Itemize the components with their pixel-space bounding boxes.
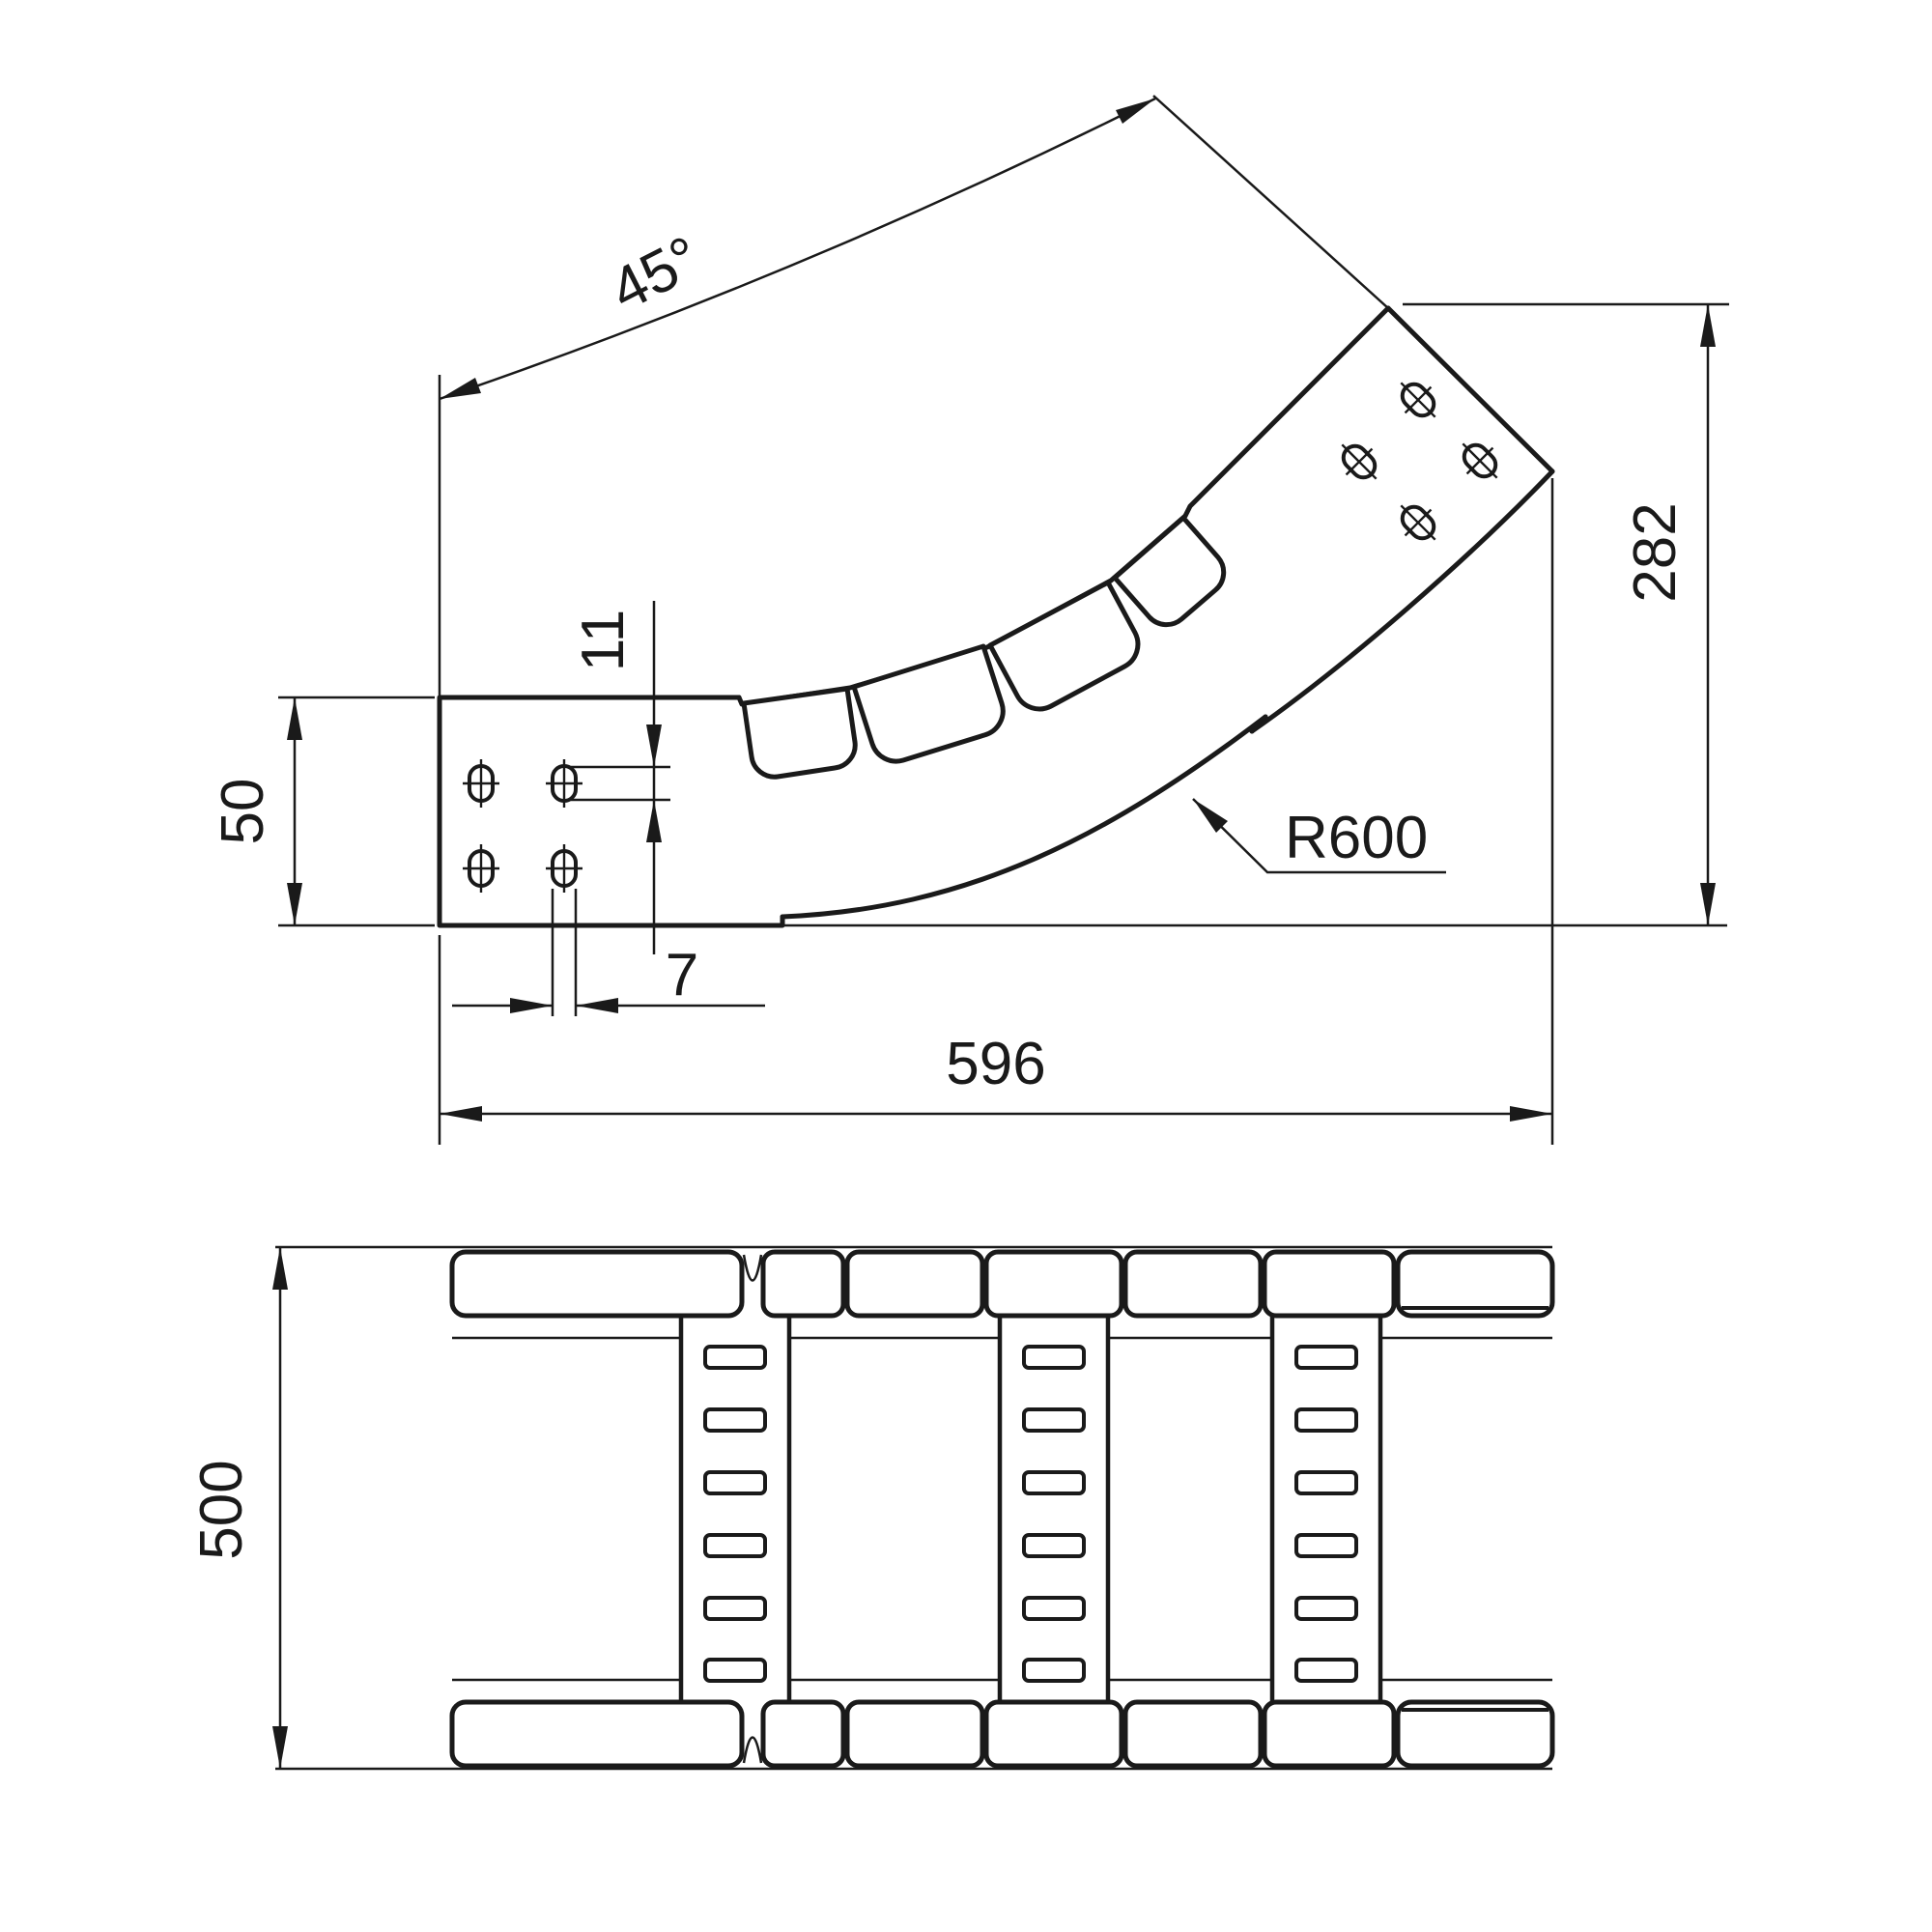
rail-segment xyxy=(1125,1702,1261,1766)
angle-arc xyxy=(440,99,1155,399)
rail-segment xyxy=(1125,1252,1261,1316)
dim-596-arrow-left xyxy=(440,1106,482,1122)
dim-500-group: 500 xyxy=(188,1247,288,1769)
angle-extension-line xyxy=(1153,96,1388,308)
dim-282-arrow-bottom xyxy=(1700,883,1716,925)
rail-segment xyxy=(847,1702,982,1766)
angle-arrow-right xyxy=(1116,99,1155,124)
angle-arrow-left xyxy=(440,378,481,399)
arrowheads xyxy=(287,99,1716,1122)
rung-3 xyxy=(1272,1316,1380,1702)
overall-width-dimension-label: 500 xyxy=(188,1460,255,1559)
drawing-canvas: 45° 282 50 11 7 596 R600 xyxy=(0,0,1932,1932)
rail-segment xyxy=(986,1252,1122,1316)
plan-bottom-rail xyxy=(452,1702,1552,1766)
dim-7-arrow-left xyxy=(510,998,553,1013)
dim-7-arrow-right xyxy=(576,998,618,1013)
dim-50-arrow-top xyxy=(287,697,302,740)
rail-segment xyxy=(1264,1702,1394,1766)
dim-282-arrow-top xyxy=(1700,304,1716,347)
rail-segment xyxy=(986,1702,1122,1766)
dimension-lines xyxy=(278,96,1729,1145)
joint-notch xyxy=(744,1255,761,1281)
joint-notch xyxy=(744,1738,761,1764)
drop-height-dimension-label: 282 xyxy=(1622,502,1689,602)
rung-1 xyxy=(681,1316,789,1702)
plan-top-rail xyxy=(452,1252,1552,1316)
bend-radius-label: R600 xyxy=(1285,805,1428,871)
slot-width-dimension-label: 7 xyxy=(666,942,698,1009)
plan-rungs xyxy=(681,1316,1380,1702)
angle-dimension-label: 45° xyxy=(600,224,711,325)
rail-segment xyxy=(452,1252,742,1316)
rail-segment xyxy=(1264,1252,1394,1316)
dim-596-arrow-right xyxy=(1510,1106,1552,1122)
dim-500-arrow-bottom xyxy=(272,1726,288,1769)
rung-2 xyxy=(1000,1316,1108,1702)
rail-height-dimension-label: 50 xyxy=(210,779,276,845)
rail-segment xyxy=(847,1252,982,1316)
side-view: 45° 282 50 11 7 596 R600 xyxy=(210,96,1729,1145)
dim-50-arrow-bottom xyxy=(287,883,302,925)
overall-length-dimension-label: 596 xyxy=(946,1031,1045,1097)
dim-500-arrow-top xyxy=(272,1247,288,1290)
rail-segment xyxy=(452,1702,742,1766)
technical-drawing-page: 45° 282 50 11 7 596 R600 xyxy=(0,0,1932,1932)
slot-length-dimension-label: 11 xyxy=(570,610,637,671)
tab-1 xyxy=(744,689,855,777)
rail-segment xyxy=(763,1702,843,1766)
rail-segment xyxy=(763,1252,843,1316)
plan-view: 500 xyxy=(188,1247,1552,1769)
